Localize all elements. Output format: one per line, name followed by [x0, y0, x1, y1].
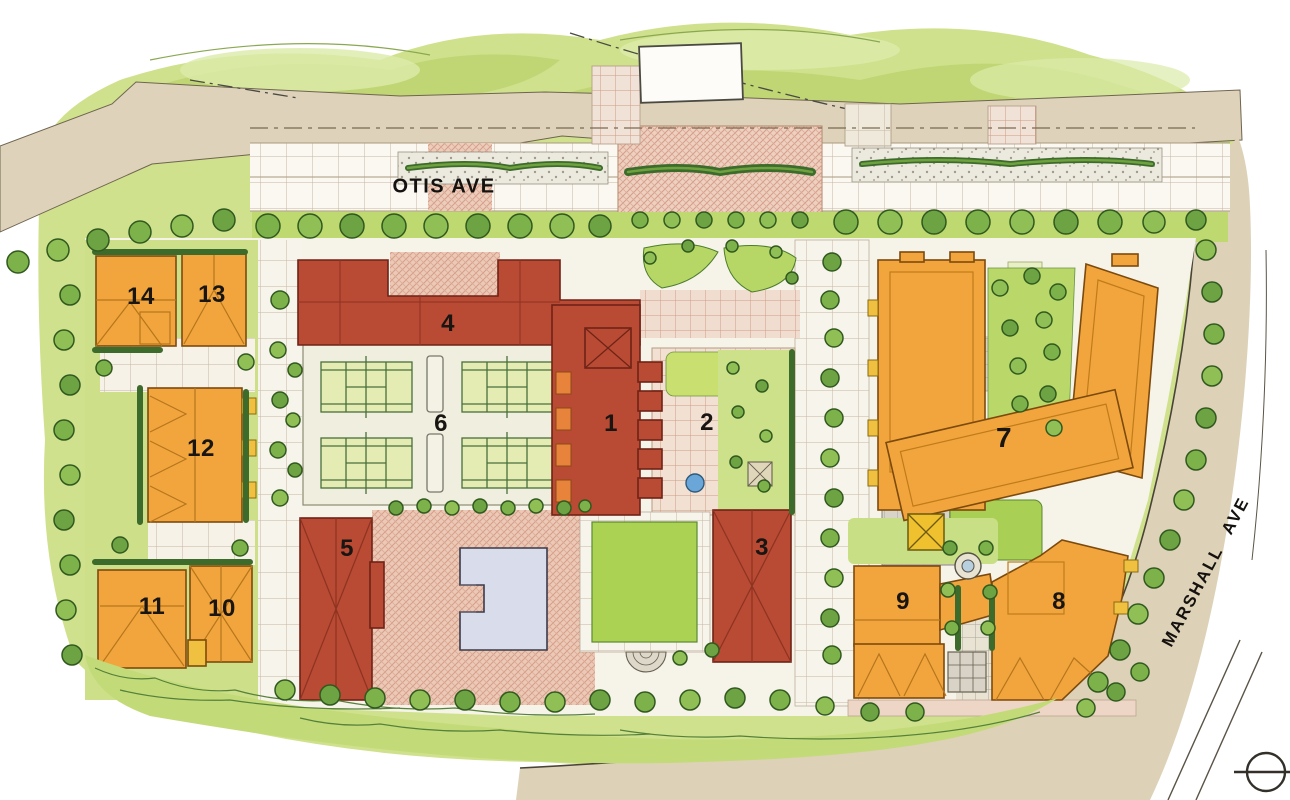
- tree-icon: [945, 621, 959, 635]
- tree-icon: [1186, 210, 1206, 230]
- building-1-fins: [638, 362, 662, 498]
- tree-icon: [54, 510, 74, 530]
- tree-icon: [417, 499, 431, 513]
- tree-icon: [232, 540, 248, 556]
- tree-icon: [1107, 683, 1125, 701]
- tree-icon: [1046, 420, 1062, 436]
- building-label-6[interactable]: 6: [434, 410, 448, 438]
- tree-icon: [410, 690, 430, 710]
- tree-icon: [270, 442, 286, 458]
- tennis-court: [462, 356, 553, 418]
- tree-icon: [730, 456, 742, 468]
- tree-icon: [728, 212, 744, 228]
- tree-icon: [644, 252, 656, 264]
- tree-icon: [1002, 320, 1018, 336]
- tree-icon: [529, 499, 543, 513]
- tree-icon: [590, 690, 610, 710]
- tree-icon: [825, 489, 843, 507]
- tree-icon: [54, 420, 74, 440]
- tree-icon: [271, 291, 289, 309]
- tree-icon: [87, 229, 109, 251]
- tree-icon: [727, 362, 739, 374]
- tree-icon: [389, 501, 403, 515]
- tree-icon: [834, 210, 858, 234]
- tree-icon: [823, 646, 841, 664]
- tree-icon: [320, 685, 340, 705]
- tree-icon: [943, 541, 957, 555]
- building-label-8[interactable]: 8: [1052, 588, 1066, 616]
- building-label-3[interactable]: 3: [755, 534, 769, 562]
- tree-icon: [545, 692, 565, 712]
- offsite-building-outline: [639, 43, 743, 103]
- tree-icon: [825, 409, 843, 427]
- tree-icon: [256, 214, 280, 238]
- building-label-10[interactable]: 10: [208, 595, 236, 623]
- tree-icon: [382, 214, 406, 238]
- tree-icon: [992, 280, 1008, 296]
- pergola: [948, 652, 986, 692]
- tree-icon: [56, 600, 76, 620]
- building-label-14[interactable]: 14: [127, 283, 155, 311]
- tree-icon: [673, 651, 687, 665]
- building-label-9[interactable]: 9: [896, 588, 910, 616]
- tree-icon: [1040, 386, 1056, 402]
- tree-icon: [455, 690, 475, 710]
- tree-icon: [1050, 284, 1066, 300]
- tree-icon: [1077, 699, 1095, 717]
- tree-icon: [941, 583, 955, 597]
- tree-icon: [62, 645, 82, 665]
- tree-icon: [1024, 268, 1040, 284]
- tree-icon: [508, 214, 532, 238]
- garden-pond: [686, 474, 704, 492]
- tree-icon: [213, 209, 235, 231]
- tree-icon: [632, 212, 648, 228]
- tree-icon: [821, 529, 839, 547]
- tree-icon: [500, 692, 520, 712]
- tree-icon: [825, 329, 843, 347]
- tree-icon: [1204, 324, 1224, 344]
- tree-icon: [557, 501, 571, 515]
- tree-icon: [696, 212, 712, 228]
- tree-icon: [680, 690, 700, 710]
- tree-icon: [365, 688, 385, 708]
- site-plan-canvas: [0, 0, 1290, 800]
- tree-icon: [60, 375, 80, 395]
- tree-icon: [1143, 211, 1165, 233]
- tree-icon: [878, 210, 902, 234]
- tree-icon: [821, 609, 839, 627]
- tree-icon: [1160, 530, 1180, 550]
- tree-icon: [1186, 450, 1206, 470]
- building-label-4[interactable]: 4: [441, 310, 455, 338]
- tree-icon: [129, 221, 151, 243]
- tree-icon: [473, 499, 487, 513]
- tree-icon: [922, 210, 946, 234]
- tree-icon: [589, 215, 611, 237]
- tree-icon: [725, 688, 745, 708]
- tree-icon: [983, 585, 997, 599]
- tennis-court: [462, 432, 553, 494]
- tree-icon: [54, 330, 74, 350]
- tree-icon: [760, 212, 776, 228]
- tree-icon: [1196, 240, 1216, 260]
- building-label-12[interactable]: 12: [187, 435, 215, 463]
- tree-icon: [112, 537, 128, 553]
- tree-icon: [96, 360, 112, 376]
- tree-icon: [272, 490, 288, 506]
- tree-icon: [1044, 344, 1060, 360]
- tree-icon: [979, 541, 993, 555]
- tree-icon: [821, 291, 839, 309]
- tree-icon: [1098, 210, 1122, 234]
- tree-icon: [1202, 366, 1222, 386]
- building-label-13[interactable]: 13: [198, 281, 226, 309]
- tree-icon: [7, 251, 29, 273]
- tree-icon: [1088, 672, 1108, 692]
- tree-icon: [1144, 568, 1164, 588]
- central-lawn: [592, 522, 697, 642]
- tree-icon: [1054, 210, 1078, 234]
- tree-icon: [60, 465, 80, 485]
- building-label-7[interactable]: 7: [996, 422, 1012, 454]
- tree-icon: [238, 354, 254, 370]
- tree-icon: [501, 501, 515, 515]
- tree-icon: [1036, 312, 1052, 328]
- building-label-2[interactable]: 2: [700, 409, 714, 437]
- tree-icon: [758, 480, 770, 492]
- tree-icon: [823, 253, 841, 271]
- tree-icon: [288, 463, 302, 477]
- tree-icon: [770, 690, 790, 710]
- tennis-court: [321, 356, 412, 418]
- tree-icon: [60, 555, 80, 575]
- tree-icon: [770, 246, 782, 258]
- tree-icon: [550, 214, 574, 238]
- tree-icon: [906, 703, 924, 721]
- tree-icon: [1128, 604, 1148, 624]
- tree-icon: [732, 406, 744, 418]
- tree-icon: [1131, 663, 1149, 681]
- tree-icon: [171, 215, 193, 237]
- tree-icon: [792, 212, 808, 228]
- tree-icon: [288, 363, 302, 377]
- tree-icon: [286, 413, 300, 427]
- tree-icon: [966, 210, 990, 234]
- tree-icon: [270, 342, 286, 358]
- tree-icon: [816, 697, 834, 715]
- north-arrow-icon: [1234, 753, 1290, 791]
- tree-icon: [579, 500, 591, 512]
- building-label-1[interactable]: 1: [604, 410, 618, 438]
- tree-icon: [272, 392, 288, 408]
- tree-icon: [825, 569, 843, 587]
- tree-icon: [821, 449, 839, 467]
- tree-icon: [1202, 282, 1222, 302]
- tree-icon: [298, 214, 322, 238]
- tree-icon: [1110, 640, 1130, 660]
- tree-icon: [726, 240, 738, 252]
- tree-icon: [1196, 408, 1216, 428]
- site-plan: OTIS AVE MARSHALL AVE 1 2 3 4 5 6 7 8 9 …: [0, 0, 1290, 800]
- tree-icon: [705, 643, 719, 657]
- tree-icon: [1010, 358, 1026, 374]
- tree-icon: [635, 692, 655, 712]
- tree-icon: [445, 501, 459, 515]
- tree-icon: [466, 214, 490, 238]
- tree-icon: [340, 214, 364, 238]
- street-label-otis-ave: OTIS AVE: [392, 176, 495, 199]
- building-label-5[interactable]: 5: [340, 535, 354, 563]
- tree-icon: [1010, 210, 1034, 234]
- tree-icon: [981, 621, 995, 635]
- tree-icon: [664, 212, 680, 228]
- tree-icon: [861, 703, 879, 721]
- tree-icon: [275, 680, 295, 700]
- tree-icon: [47, 239, 69, 261]
- tree-icon: [756, 380, 768, 392]
- tree-icon: [60, 285, 80, 305]
- tennis-court: [321, 432, 412, 494]
- tree-icon: [821, 369, 839, 387]
- tree-icon: [786, 272, 798, 284]
- tree-icon: [1174, 490, 1194, 510]
- tree-icon: [760, 430, 772, 442]
- tree-icon: [1012, 396, 1028, 412]
- building-label-11[interactable]: 11: [139, 593, 165, 621]
- tree-icon: [682, 240, 694, 252]
- tree-icon: [424, 214, 448, 238]
